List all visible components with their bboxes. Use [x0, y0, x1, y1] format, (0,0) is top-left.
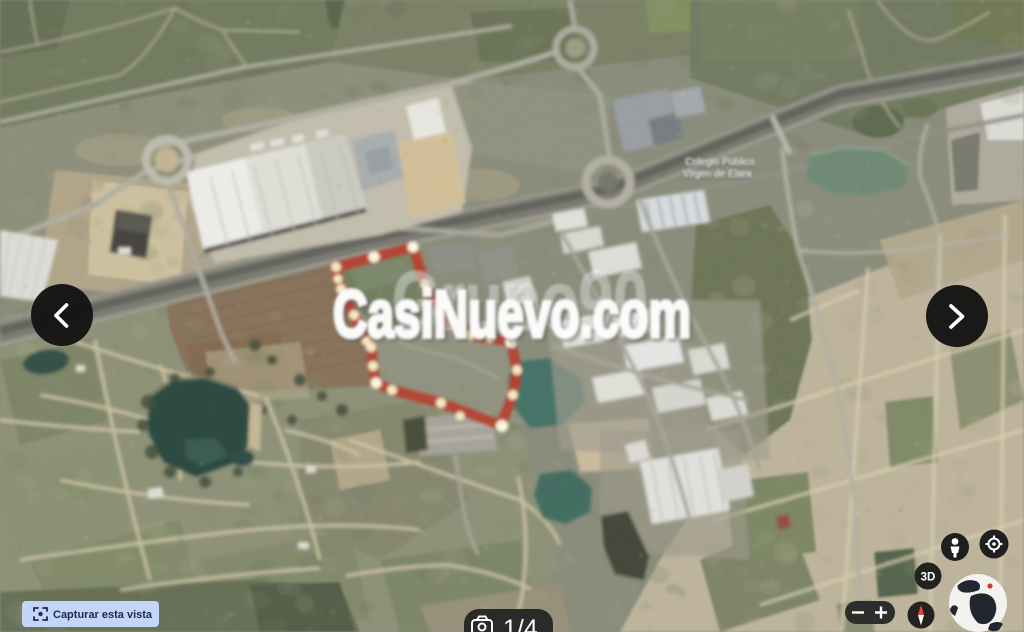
svg-text:1/4: 1/4	[503, 615, 538, 632]
svg-text:Capturar esta vista: Capturar esta vista	[53, 609, 153, 621]
svg-text:3D: 3D	[921, 572, 936, 584]
